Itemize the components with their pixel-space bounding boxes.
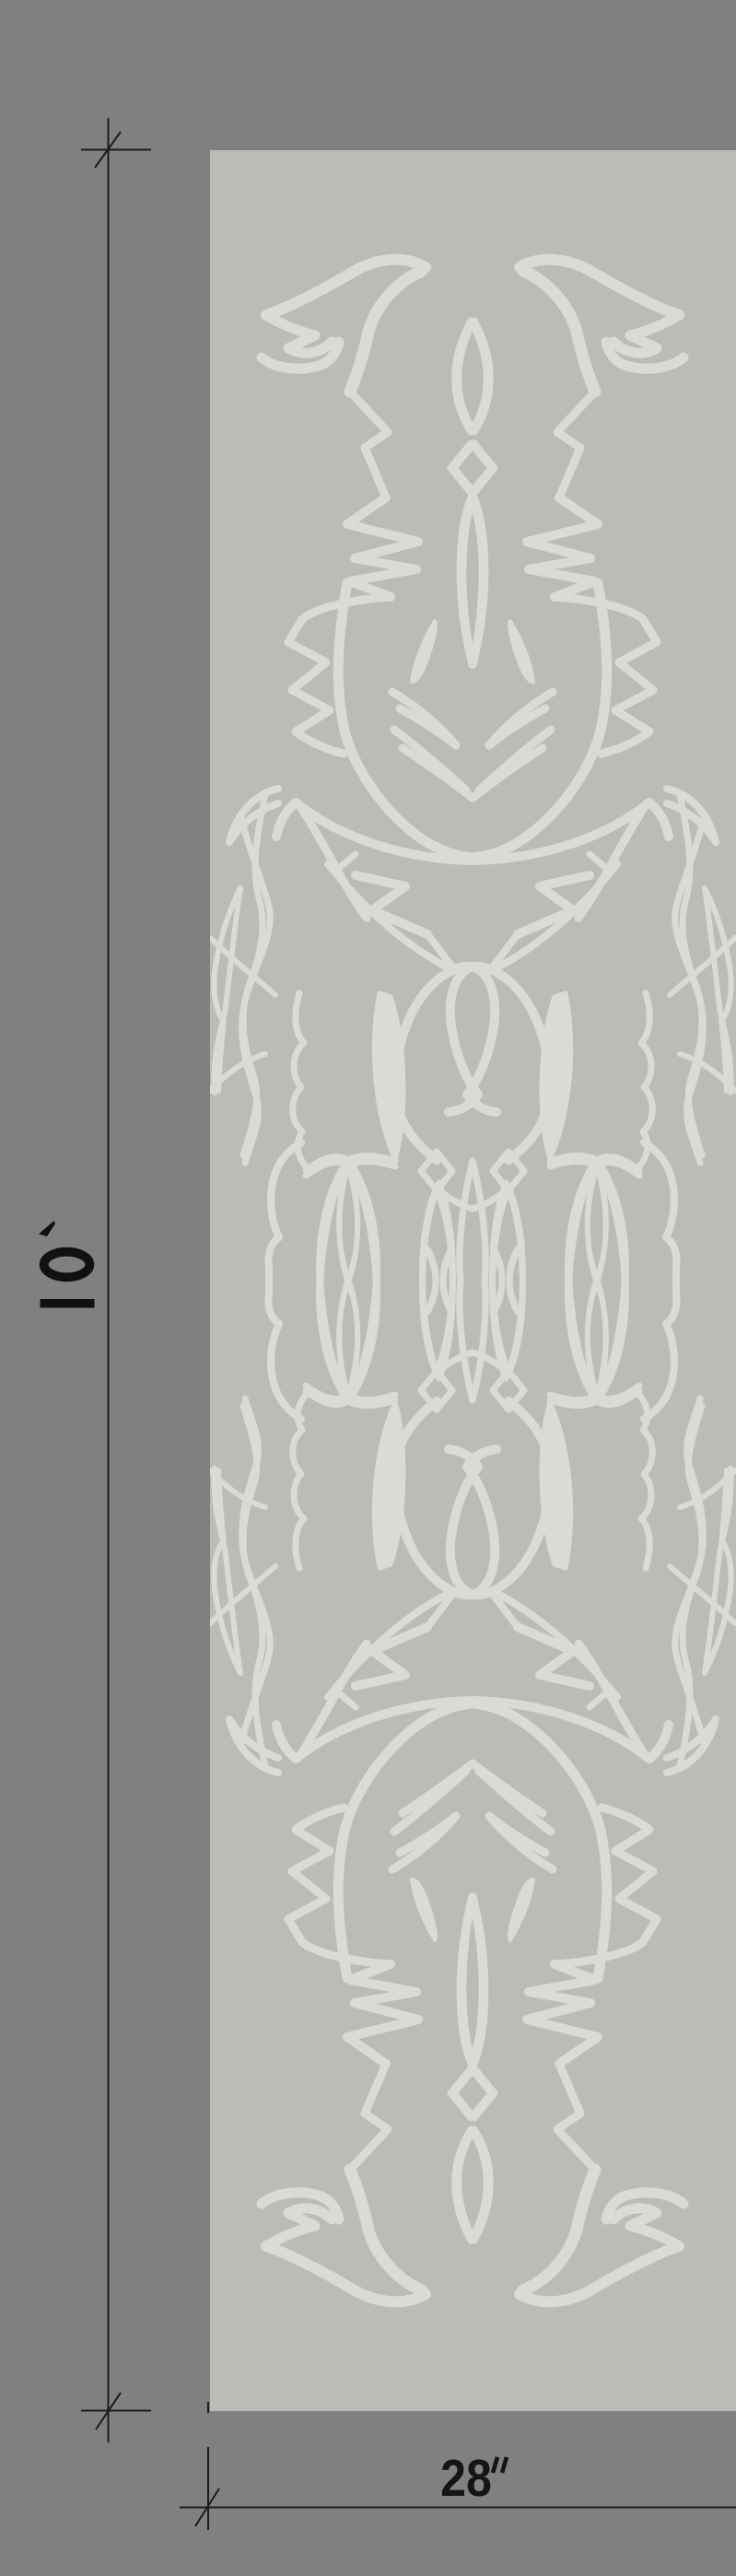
- svg-text:28: 28: [440, 2449, 492, 2508]
